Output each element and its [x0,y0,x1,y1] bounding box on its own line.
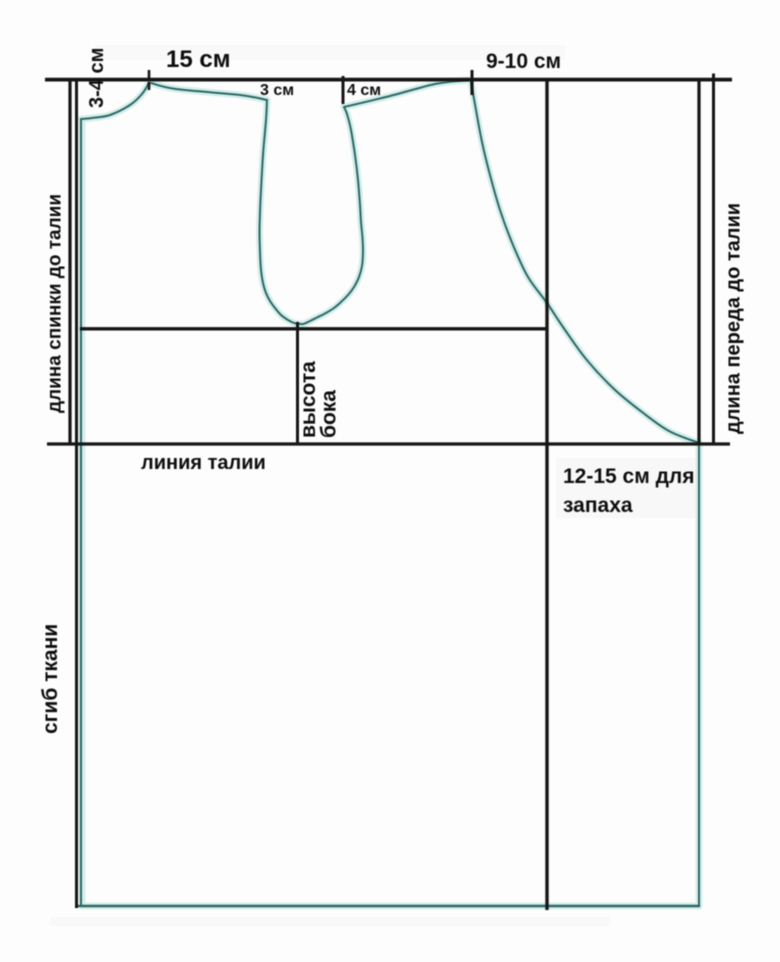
svg-text:длина переда до талии: длина переда до талии [723,203,745,434]
svg-text:сгиб ткани: сгиб ткани [39,624,62,734]
svg-text:3 см: 3 см [260,82,294,99]
svg-text:длина спинки до талии: длина спинки до талии [45,194,66,413]
svg-text:3-4 см: 3-4 см [86,48,108,108]
svg-text:15 см: 15 см [166,46,230,73]
svg-text:бока: бока [318,390,341,438]
svg-text:12-15 см для: 12-15 см для [563,465,695,488]
svg-text:запаха: запаха [563,494,633,517]
svg-text:9-10 см: 9-10 см [486,50,561,73]
svg-text:4 см: 4 см [347,82,381,99]
svg-text:линия талии: линия талии [141,452,266,474]
